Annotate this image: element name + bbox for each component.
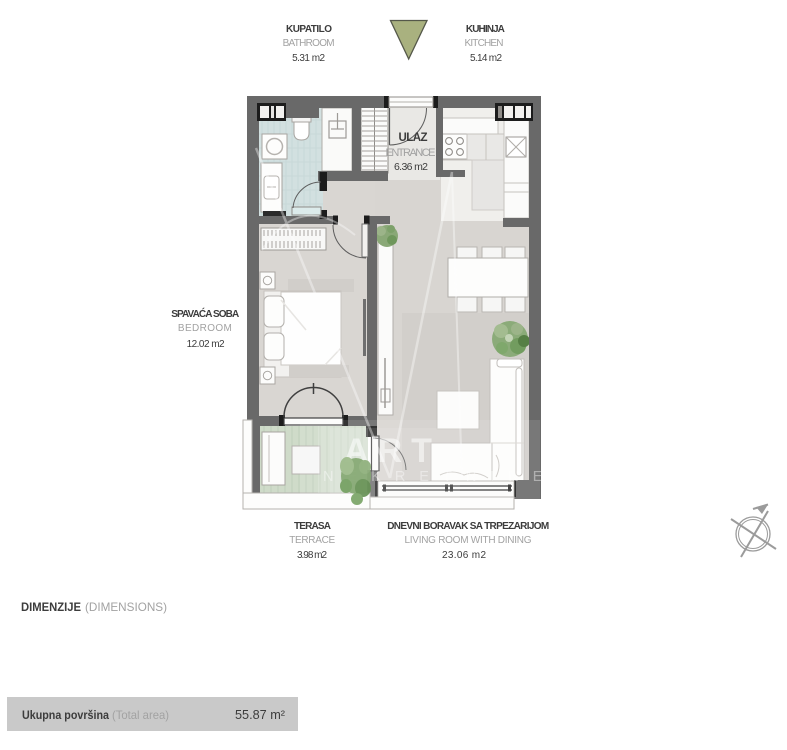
svg-text:Ukupna površina: Ukupna površina	[22, 708, 109, 722]
svg-text:(Total area): (Total area)	[112, 708, 169, 722]
svg-text:ENTRANCE: ENTRANCE	[386, 147, 436, 159]
svg-text:(DIMENSIONS): (DIMENSIONS)	[85, 600, 167, 614]
svg-text:ULAZ: ULAZ	[399, 132, 428, 144]
svg-text:DNEVNI BORAVAK SA TRPEZARIJOM: DNEVNI BORAVAK SA TRPEZARIJOM	[387, 521, 549, 532]
svg-text:DIMENZIJE: DIMENZIJE	[21, 600, 81, 614]
svg-text:6.36 m2: 6.36 m2	[394, 161, 428, 173]
svg-text:KITCHEN: KITCHEN	[465, 38, 504, 49]
svg-text:BATHROOM: BATHROOM	[283, 38, 335, 49]
svg-text:SPAVAĆA SOBA: SPAVAĆA SOBA	[171, 307, 239, 320]
svg-text:5.31 m2: 5.31 m2	[292, 53, 325, 64]
svg-text:BEDROOM: BEDROOM	[178, 323, 232, 334]
svg-text:55.87 m²: 55.87 m²	[235, 707, 286, 722]
svg-text:TERASA: TERASA	[294, 521, 331, 532]
svg-text:23.06 m2: 23.06 m2	[442, 550, 486, 561]
svg-text:5.14 m2: 5.14 m2	[470, 53, 502, 64]
svg-text:KUHINJA: KUHINJA	[466, 24, 505, 35]
svg-text:3.98 m2: 3.98 m2	[297, 550, 327, 561]
svg-text:12.02 m2: 12.02 m2	[187, 339, 225, 350]
svg-text:TERRACE: TERRACE	[289, 535, 335, 546]
svg-text:LIVING ROOM WITH DINING: LIVING ROOM WITH DINING	[405, 535, 532, 546]
svg-text:KUPATILO: KUPATILO	[286, 24, 332, 35]
